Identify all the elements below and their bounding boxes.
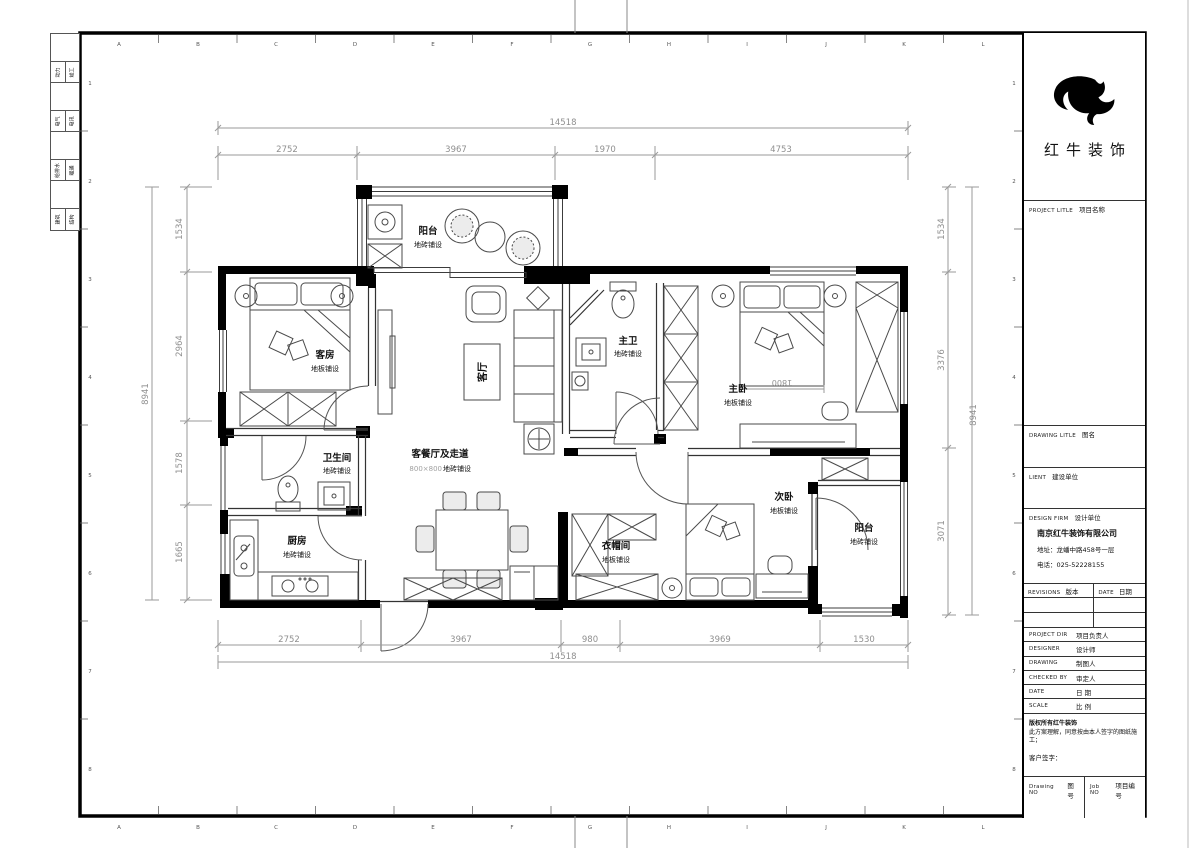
furniture-bathroom bbox=[276, 476, 350, 511]
row-project-dir: PROJECT DIR 项目负责人 bbox=[1024, 627, 1145, 641]
section-label-en: DESIGN FIRM bbox=[1029, 516, 1069, 522]
row-label-cn: 审定人 bbox=[1076, 673, 1096, 683]
bull-logo-icon bbox=[1043, 73, 1127, 125]
discipline-empty-row bbox=[51, 132, 79, 160]
room-label-bath: 卫生间 bbox=[323, 452, 352, 464]
grid-number: 7 bbox=[1012, 669, 1016, 675]
revisions-table: REVISIONS 版本 DATE 日期 bbox=[1024, 583, 1145, 627]
job-no-cell: Job NO 项目编号 bbox=[1085, 777, 1145, 818]
room-label-master-bath: 主卫 bbox=[618, 335, 638, 347]
discipline-label: 电气 bbox=[54, 116, 61, 126]
row-date: DATE 日 期 bbox=[1024, 684, 1145, 698]
dim-left: 1578 bbox=[175, 452, 185, 474]
room-label-kitchen: 厨房 bbox=[287, 535, 306, 547]
grid-numbers-right: 1 2 3 4 5 6 7 8 bbox=[1012, 81, 1016, 773]
section-label-cn: 项目名称 bbox=[1079, 204, 1105, 214]
room-label-balcony-bottom: 阳台 bbox=[854, 522, 874, 534]
copyright-block: 版权所有红牛装饰 此方案理解，同意按由本人签字的图纸施工； 客户签字： bbox=[1024, 713, 1145, 776]
signature-label: 客户签字： bbox=[1029, 752, 1140, 762]
grid-letter: D bbox=[353, 825, 357, 831]
dim-right: 3376 bbox=[937, 349, 947, 371]
dim-bottom: 3969 bbox=[709, 635, 731, 645]
discipline-empty-row bbox=[51, 83, 79, 111]
grid-number: 5 bbox=[88, 473, 92, 479]
section-project-title: PROJECT LITLE 项目名称 bbox=[1024, 200, 1145, 425]
discipline-cell: 建筑 bbox=[51, 209, 66, 230]
room-label-balcony-top: 阳台 bbox=[418, 225, 438, 237]
discipline-strip: 动力 竣工 电气 电讯 给排水 暖通 建筑 结构 bbox=[50, 33, 80, 231]
furniture-living-dining bbox=[378, 286, 562, 600]
grid-number: 5 bbox=[1012, 473, 1016, 479]
room-finish-balcony-top: 地砖铺设 bbox=[414, 240, 442, 249]
grid-number: 8 bbox=[88, 767, 92, 773]
discipline-label: 给排水 bbox=[54, 162, 61, 177]
dim-right: 1534 bbox=[937, 218, 947, 240]
discipline-label: 建筑 bbox=[54, 214, 61, 224]
discipline-row: 给排水 暖通 bbox=[51, 160, 79, 181]
dim-left: 1534 bbox=[175, 218, 185, 240]
row-label-cn: 比 例 bbox=[1076, 701, 1091, 711]
row-label-en: DATE bbox=[1029, 689, 1076, 695]
row-label-cn: 日 期 bbox=[1076, 687, 1091, 697]
revisions-label-en: REVISIONS bbox=[1028, 590, 1060, 596]
room-label-cloak-room: 衣帽间 bbox=[602, 540, 631, 552]
dim-top: 3967 bbox=[445, 145, 467, 155]
dim-top: 2752 bbox=[276, 145, 298, 155]
discipline-cell: 动力 bbox=[51, 62, 66, 82]
grid-number: 7 bbox=[88, 669, 92, 675]
discipline-empty-row bbox=[51, 34, 79, 62]
grid-letter: J bbox=[824, 42, 827, 48]
row-label-cn: 项目负责人 bbox=[1076, 630, 1109, 640]
room-label-dining-hall: 客餐厅及走道 bbox=[410, 448, 469, 460]
discipline-label: 竣工 bbox=[69, 67, 76, 77]
firm-name: 南京红牛装饰有限公司 bbox=[1037, 528, 1140, 539]
revision-date-empty bbox=[1094, 613, 1145, 628]
discipline-empty-row bbox=[51, 181, 79, 209]
floor-plan: A B C D E F G H I J K L A B C D E F G H … bbox=[0, 0, 1200, 848]
grid-letter: H bbox=[667, 42, 671, 48]
discipline-cell: 暖通 bbox=[66, 160, 80, 180]
room-finish-dining-hall: 地砖铺设 bbox=[443, 464, 471, 473]
discipline-row: 动力 竣工 bbox=[51, 62, 79, 83]
dim-bottom-overall: 14518 bbox=[549, 652, 576, 662]
drawing-sheet: A B C D E F G H I J K L A B C D E F G H … bbox=[0, 0, 1200, 848]
revision-date-empty bbox=[1094, 598, 1145, 613]
agreement-line: 此方案理解，同意按由本人签字的图纸施工； bbox=[1029, 729, 1140, 745]
grid-letter: C bbox=[274, 42, 278, 48]
grid-letter: J bbox=[824, 825, 827, 831]
grid-letter: B bbox=[196, 42, 200, 48]
discipline-cell: 结构 bbox=[66, 209, 80, 230]
section-drawing-title: DRAWING LITLE 图名 bbox=[1024, 425, 1145, 467]
grid-letter: B bbox=[196, 825, 200, 831]
section-label-cn: 图名 bbox=[1082, 429, 1095, 439]
dim-bottom: 3967 bbox=[450, 635, 472, 645]
grid-number: 3 bbox=[1012, 277, 1016, 283]
grid-number: 1 bbox=[88, 81, 92, 87]
section-label-en: PROJECT LITLE bbox=[1029, 208, 1073, 214]
row-label-en: DRAWING bbox=[1029, 660, 1076, 666]
grid-letter: K bbox=[902, 825, 906, 831]
room-label-guest-room: 客房 bbox=[314, 349, 334, 361]
dim-top: 4753 bbox=[770, 145, 792, 155]
firm-address: 地址：龙蟠中路458号一层 bbox=[1037, 544, 1140, 554]
dim-top: 1970 bbox=[594, 145, 616, 155]
grid-letter: I bbox=[746, 825, 748, 831]
revisions-header: REVISIONS 版本 bbox=[1024, 584, 1094, 598]
row-label-en: PROJECT DIR bbox=[1029, 632, 1076, 638]
dim-bottom: 1530 bbox=[853, 635, 875, 645]
section-label-en: DRAWING LITLE bbox=[1029, 433, 1076, 439]
section-label-cn: 设计单位 bbox=[1075, 512, 1101, 522]
grid-letters-bottom: A B C D E F G H I J K L bbox=[117, 825, 985, 831]
grid-letter: D bbox=[353, 42, 357, 48]
brand-name: 红牛装饰 bbox=[1037, 139, 1132, 160]
job-no-cn: 项目编号 bbox=[1115, 780, 1140, 800]
discipline-cell: 电气 bbox=[51, 111, 66, 131]
room-finish-kitchen: 地砖铺设 bbox=[283, 550, 311, 559]
row-drawing: DRAWING 制图人 bbox=[1024, 656, 1145, 670]
discipline-label: 动力 bbox=[54, 67, 61, 77]
dim-bottom: 980 bbox=[582, 635, 598, 645]
grid-letter: E bbox=[431, 825, 435, 831]
dim-left: 2964 bbox=[175, 335, 185, 357]
revision-row-empty bbox=[1024, 598, 1094, 613]
discipline-cell: 竣工 bbox=[66, 62, 80, 82]
title-block: 红牛装饰 PROJECT LITLE 项目名称 DRAWING LITLE 图名… bbox=[1022, 33, 1145, 818]
footer-row: Drawing NO 图号 Job NO 项目编号 bbox=[1024, 776, 1145, 818]
row-label-cn: 制图人 bbox=[1076, 658, 1096, 668]
section-client: LIENT 建设单位 bbox=[1024, 467, 1145, 508]
room-label-master-bed: 主卧 bbox=[728, 383, 748, 395]
room-finish-cloak-room: 地板铺设 bbox=[602, 555, 630, 564]
grid-letter: A bbox=[117, 42, 121, 48]
room-finish-guest-room: 地板铺设 bbox=[311, 364, 339, 373]
revisions-date-header: DATE 日期 bbox=[1094, 584, 1145, 598]
section-design-firm: DESIGN FIRM 设计单位 南京红牛装饰有限公司 地址：龙蟠中路458号一… bbox=[1024, 508, 1145, 583]
grid-number: 2 bbox=[88, 179, 92, 185]
discipline-row: 电气 电讯 bbox=[51, 111, 79, 132]
row-checked-by: CHECKED BY 审定人 bbox=[1024, 670, 1145, 684]
furniture-kitchen bbox=[230, 520, 358, 600]
grid-letter: F bbox=[510, 825, 513, 831]
grid-number: 4 bbox=[1012, 375, 1016, 381]
grid-letter: A bbox=[117, 825, 121, 831]
room-finish-size-dining-hall: 800×800 bbox=[409, 465, 442, 473]
title-block-logo-area: 红牛装饰 bbox=[1024, 33, 1145, 200]
section-label-en: LIENT bbox=[1029, 475, 1046, 481]
grid-numbers-left: 1 2 3 4 5 6 7 8 bbox=[88, 81, 92, 773]
drawing-no-en: Drawing NO bbox=[1029, 784, 1061, 796]
row-label-en: CHECKED BY bbox=[1029, 675, 1076, 681]
section-label-cn: 建设单位 bbox=[1052, 471, 1078, 481]
grid-letter: C bbox=[274, 825, 278, 831]
grid-number: 4 bbox=[88, 375, 92, 381]
dim-right-overall: 8941 bbox=[969, 404, 979, 426]
discipline-cell: 给排水 bbox=[51, 160, 66, 180]
room-label-second-bed: 次卧 bbox=[774, 491, 794, 503]
row-label-en: SCALE bbox=[1029, 703, 1076, 709]
room-finish-second-bed: 地板铺设 bbox=[770, 506, 798, 515]
room-finish-bath: 地砖铺设 bbox=[323, 466, 351, 475]
firm-phone: 电话：025-52228155 bbox=[1037, 559, 1140, 569]
furniture-balcony-top bbox=[368, 205, 540, 268]
row-designer: DESIGNER 设计师 bbox=[1024, 641, 1145, 655]
grid-number: 1 bbox=[1012, 81, 1016, 87]
grid-letter: K bbox=[902, 42, 906, 48]
row-label-en: DESIGNER bbox=[1029, 646, 1076, 652]
furniture-second-bed bbox=[662, 458, 868, 600]
date-label-en: DATE bbox=[1098, 590, 1114, 596]
grid-letter: I bbox=[746, 42, 748, 48]
revisions-label-cn: 版本 bbox=[1065, 586, 1078, 596]
room-finish-master-bath: 地砖铺设 bbox=[614, 349, 642, 358]
revision-row-empty bbox=[1024, 613, 1094, 628]
row-scale: SCALE 比 例 bbox=[1024, 698, 1145, 712]
grid-letter: G bbox=[588, 42, 592, 48]
discipline-row: 建筑 结构 bbox=[51, 209, 79, 230]
dim-bottom: 2752 bbox=[278, 635, 300, 645]
dim-bed-width: 1800 bbox=[772, 378, 792, 387]
dim-right: 3071 bbox=[937, 520, 947, 542]
grid-letter: E bbox=[431, 42, 435, 48]
room-label-living: 客厅 bbox=[476, 362, 489, 383]
dim-left-overall: 8941 bbox=[141, 383, 151, 405]
grid-letter: F bbox=[510, 42, 513, 48]
grid-letter: H bbox=[667, 825, 671, 831]
grid-number: 6 bbox=[88, 571, 92, 577]
room-finish-balcony-bottom: 地砖铺设 bbox=[850, 537, 878, 546]
job-no-en: Job NO bbox=[1090, 784, 1109, 796]
copyright-line: 版权所有红牛装饰 bbox=[1029, 718, 1140, 727]
discipline-cell: 电讯 bbox=[66, 111, 80, 131]
date-label-cn: 日期 bbox=[1119, 586, 1132, 596]
grid-number: 3 bbox=[88, 277, 92, 283]
grid-letter: G bbox=[588, 825, 592, 831]
discipline-label: 结构 bbox=[69, 214, 76, 224]
grid-letter: L bbox=[981, 825, 985, 831]
grid-number: 2 bbox=[1012, 179, 1016, 185]
grid-number: 8 bbox=[1012, 767, 1016, 773]
discipline-label: 暖通 bbox=[69, 165, 76, 175]
drawing-no-cell: Drawing NO 图号 bbox=[1024, 777, 1085, 818]
grid-letter: L bbox=[981, 42, 985, 48]
dim-left: 1665 bbox=[175, 541, 185, 563]
furniture-guest-room bbox=[235, 278, 353, 426]
room-finish-master-bed: 地板铺设 bbox=[724, 398, 752, 407]
drawing-no-cn: 图号 bbox=[1067, 780, 1079, 800]
dim-top-overall: 14518 bbox=[549, 118, 576, 128]
row-label-cn: 设计师 bbox=[1076, 644, 1096, 654]
furniture-master-bed bbox=[712, 282, 898, 448]
discipline-label: 电讯 bbox=[69, 116, 76, 126]
grid-number: 6 bbox=[1012, 571, 1016, 577]
